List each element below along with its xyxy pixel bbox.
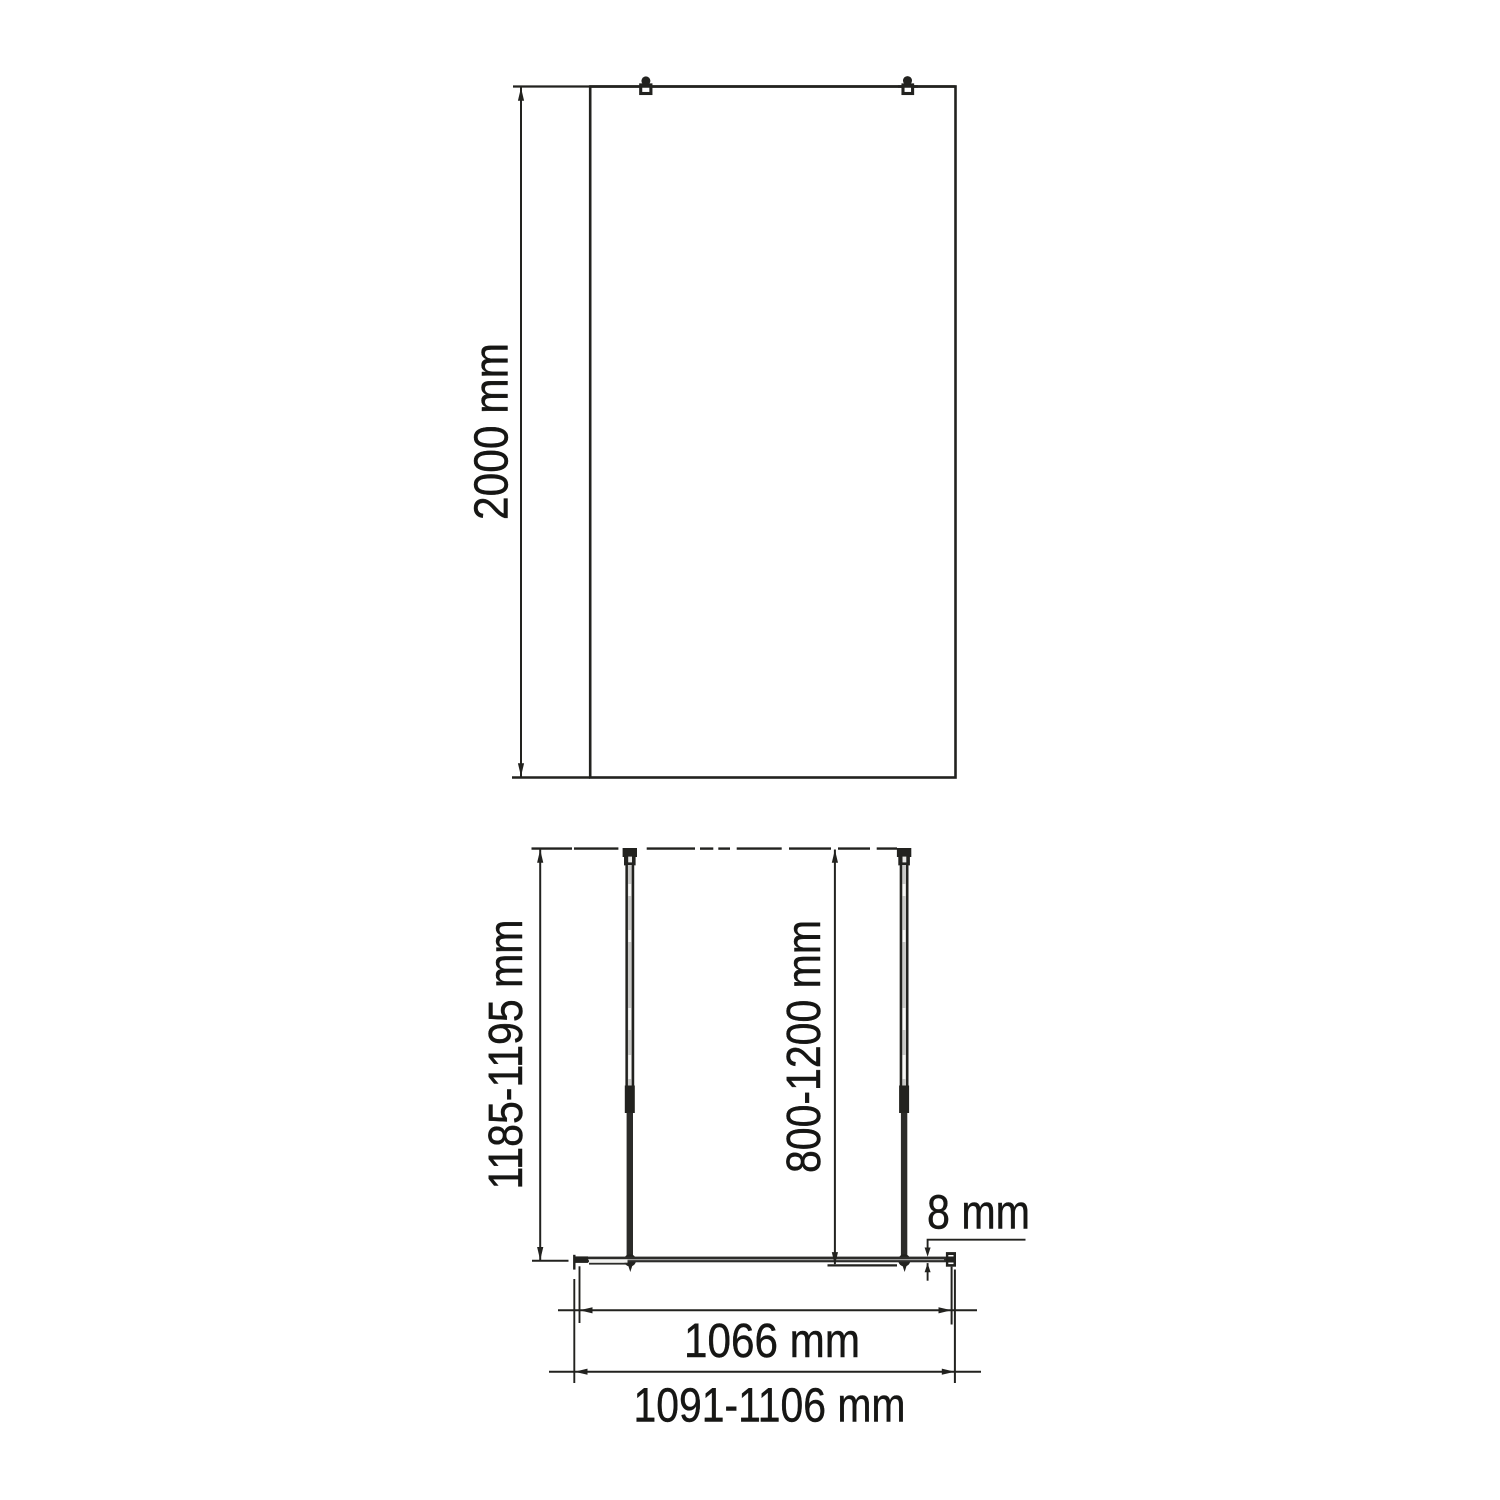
svg-text:1185-1195 mm: 1185-1195 mm [479, 920, 533, 1190]
svg-text:8 mm: 8 mm [927, 1185, 1030, 1239]
svg-text:2000 mm: 2000 mm [465, 343, 519, 520]
svg-text:1091-1106 mm: 1091-1106 mm [634, 1379, 906, 1433]
svg-text:800-1200 mm: 800-1200 mm [777, 920, 831, 1173]
svg-text:1066 mm: 1066 mm [684, 1314, 860, 1368]
